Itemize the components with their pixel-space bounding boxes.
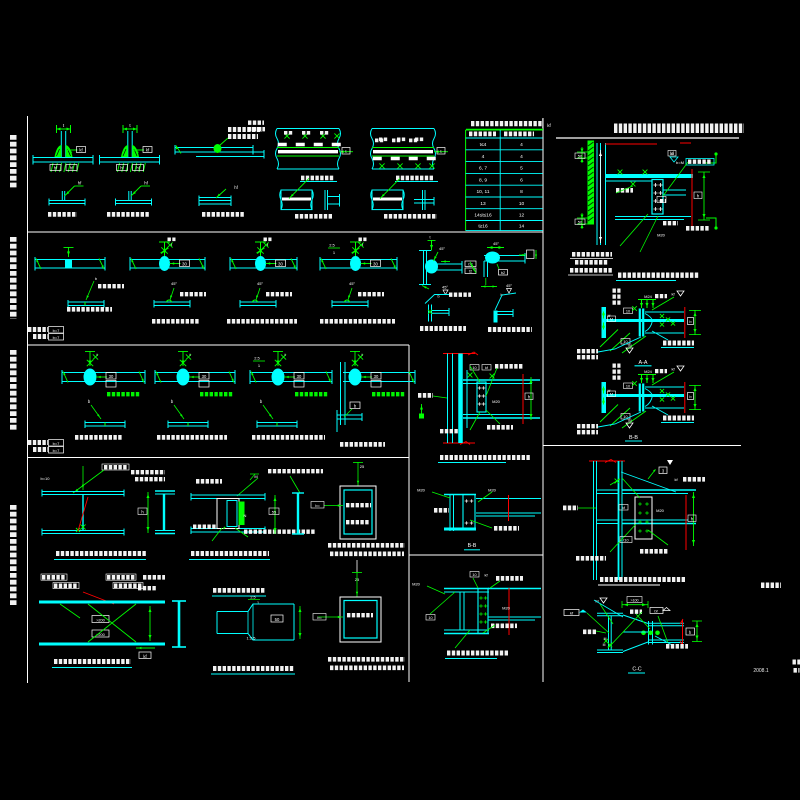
svg-text:10: 10 — [519, 201, 525, 207]
svg-text:2.5: 2.5 — [254, 356, 260, 361]
svg-text:t2: t2 — [469, 270, 472, 274]
svg-text:45°: 45° — [349, 281, 355, 286]
svg-text:M: M — [604, 637, 607, 641]
svg-text:N: N — [244, 513, 247, 518]
svg-text:10: 10 — [428, 616, 432, 620]
svg-text:b=7: b=7 — [53, 441, 61, 446]
svg-text:M20: M20 — [502, 606, 511, 611]
svg-text:2.5: 2.5 — [250, 596, 255, 600]
svg-text:45°: 45° — [439, 246, 445, 251]
svg-text:4: 4 — [520, 154, 523, 160]
svg-text:M: M — [610, 393, 613, 397]
svg-text:8: 8 — [520, 189, 523, 195]
svg-text:10, 11: 10, 11 — [477, 189, 490, 195]
svg-text:t≥16: t≥16 — [478, 224, 488, 230]
svg-text:M20: M20 — [488, 488, 497, 493]
svg-text:4: 4 — [482, 154, 485, 160]
svg-text:25: 25 — [360, 464, 365, 469]
svg-text:45°: 45° — [171, 281, 177, 286]
svg-text:2008.1: 2008.1 — [753, 668, 769, 674]
svg-text:1:2.5: 1:2.5 — [247, 636, 257, 641]
svg-text:10: 10 — [670, 152, 674, 156]
svg-text:>100: >100 — [630, 599, 638, 603]
svg-text:10: 10 — [626, 310, 630, 314]
svg-text:12: 12 — [519, 213, 525, 219]
svg-text:M24: M24 — [644, 294, 653, 299]
svg-text:6, 7: 6, 7 — [479, 166, 487, 172]
svg-text:M: M — [603, 643, 606, 647]
svg-text:B-B: B-B — [468, 543, 477, 549]
svg-text:M: M — [610, 318, 613, 322]
svg-text:b=7: b=7 — [53, 448, 61, 453]
svg-text:t10: t10 — [623, 539, 628, 543]
svg-text:M20: M20 — [492, 399, 501, 404]
svg-text:45°: 45° — [442, 285, 448, 290]
svg-text:b=M: b=M — [676, 160, 684, 165]
svg-text:t≤4: t≤4 — [480, 142, 487, 148]
svg-text:10: 10 — [472, 573, 476, 577]
svg-text:30: 30 — [297, 374, 302, 379]
svg-text:30: 30 — [374, 374, 379, 379]
svg-text:10: 10 — [626, 385, 630, 389]
svg-text:2.5: 2.5 — [329, 243, 335, 248]
svg-text:14≤t≤16: 14≤t≤16 — [474, 213, 492, 219]
svg-text:b2: b2 — [501, 271, 505, 275]
svg-text:b=10: b=10 — [40, 476, 50, 481]
svg-text:45°: 45° — [493, 241, 499, 246]
svg-text:30: 30 — [278, 261, 283, 266]
svg-text:M24: M24 — [644, 369, 653, 374]
svg-text:C-C: C-C — [632, 667, 641, 673]
svg-text:8, 9: 8, 9 — [479, 177, 487, 183]
svg-text:50: 50 — [275, 617, 280, 622]
svg-text:b=7: b=7 — [53, 335, 61, 340]
svg-text:4: 4 — [520, 142, 523, 148]
svg-text:b=: b= — [315, 503, 320, 508]
svg-text:b: b — [437, 295, 439, 299]
svg-text:50: 50 — [578, 220, 583, 225]
svg-text:>200: >200 — [96, 619, 105, 623]
svg-text:45°: 45° — [257, 281, 263, 286]
svg-text:10: 10 — [472, 366, 476, 370]
svg-text:14: 14 — [519, 224, 525, 230]
svg-text:M20: M20 — [657, 233, 666, 238]
svg-text:13: 13 — [480, 201, 486, 207]
svg-text:45°: 45° — [506, 283, 512, 288]
svg-text:55: 55 — [272, 510, 277, 515]
svg-text:50: 50 — [578, 154, 583, 159]
svg-text:6: 6 — [520, 177, 523, 183]
svg-text:b=7: b=7 — [53, 328, 61, 333]
svg-text:30: 30 — [109, 374, 114, 379]
svg-text:A-A: A-A — [639, 360, 648, 366]
svg-text:30: 30 — [373, 261, 378, 266]
svg-text:30: 30 — [182, 261, 187, 266]
svg-text:M20: M20 — [412, 582, 421, 587]
svg-text:M20: M20 — [656, 508, 665, 513]
svg-text:5: 5 — [520, 166, 523, 172]
svg-text:B-B: B-B — [629, 435, 638, 441]
svg-text:30: 30 — [202, 374, 207, 379]
svg-text:b=: b= — [317, 615, 322, 620]
svg-text:M20: M20 — [417, 488, 426, 493]
